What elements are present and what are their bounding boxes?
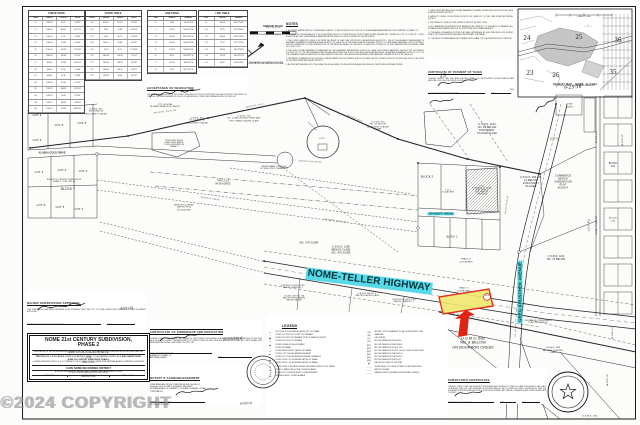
table-row: L9100.00'N63°27'00"E bbox=[199, 21, 247, 28]
legend-symbol: ▨ bbox=[365, 363, 373, 365]
table-row: C11066.00'94.01'5°03'10" bbox=[29, 21, 84, 28]
map-label: NOME-TELLER HIGHWAY bbox=[305, 267, 432, 294]
table-row: L680.59'S30°43'27"W bbox=[148, 54, 196, 61]
map-label: U.S.M.S. 1282 BENCH CLAIM NO. 4 PLACER bbox=[331, 245, 350, 254]
map-label: 24 bbox=[523, 34, 530, 42]
map-label: U.S.M.S. 827 NO. 10 BELOW DISCOVERY PLAC… bbox=[186, 117, 208, 124]
legend-item: ▪ FOUND 2 1/2" T503-S ALUMINUM MONUMENT … bbox=[266, 357, 362, 359]
line-table-2: LINE TABLE LINELENGTHBEARING L9100.00'N6… bbox=[198, 10, 248, 68]
note-item: 5. THE BASIS OF BEARING IS THE GEODETIC … bbox=[286, 58, 424, 62]
taxes-signer-label: CITY OF NOME TAX COLLECTION OFFICIAL bbox=[428, 94, 485, 96]
legend-text: MINERAL SURVEY CORNER NUMBER bbox=[276, 376, 306, 378]
table-row: C7866.00'153.88'10°10'52" bbox=[29, 60, 84, 67]
legend-text: SET T503-S 2 1/2" ALUMINUM CAPPED 5/8" X… bbox=[276, 332, 320, 334]
legend-title: LEGEND bbox=[282, 324, 297, 329]
legend-item: (R1) RECORD DATA FROM PLAT 2008-05 bbox=[365, 345, 447, 347]
note-item: 9. THE LINEAL CLOSURE OF THIS SURVEY DOE… bbox=[428, 22, 513, 24]
table-row: L3205.48'N61°29'10"W bbox=[148, 34, 196, 41]
map-label: 23 bbox=[526, 69, 533, 77]
legend-item: ○ FOUND 4"X4" FIR POST OR FIR POST REMNA… bbox=[266, 335, 362, 337]
map-label: 36 bbox=[614, 36, 621, 44]
map-label: U.S.M.S. 454 NO. 14 BELOW DISCOVERY PLAC… bbox=[520, 176, 542, 188]
legend-text: MEASURED bbox=[375, 335, 384, 337]
taxes-date-cell: DATE bbox=[491, 93, 511, 96]
parcel-detail-circle bbox=[484, 294, 491, 301]
map-label: LOT 2 bbox=[58, 169, 67, 173]
legend-text: SURVEY AND R.O.W. LINES OUTSIDE OF THIS … bbox=[375, 367, 422, 369]
map-label: 26 bbox=[552, 71, 559, 79]
red-pointer-arrow-icon bbox=[455, 310, 475, 337]
map-label: U.S.M.S. 706 NO. 11 BELOW DISCOVERY AND … bbox=[227, 115, 261, 122]
taxes-year-suffix: , 2016 bbox=[428, 89, 514, 91]
legend-symbol: ○ bbox=[266, 335, 274, 337]
map-label: S58°31'04"E 664.27' bbox=[346, 115, 363, 124]
map-label: U.S.M.S. 1104 NO. 13 BELOW DISCOVERY PLA… bbox=[477, 124, 497, 136]
monument-symbols bbox=[96, 153, 521, 254]
map-label: U.S.M.S. 1122 NO. 15 BELOW bbox=[547, 256, 565, 262]
table-row: L11348.06'N62°42'43"E bbox=[199, 34, 247, 41]
table-row: C61866.00'166.86'5°07'23" bbox=[29, 54, 84, 61]
legend-item: (M) MEASURED bbox=[365, 335, 447, 337]
legend-symbol: (R4) bbox=[365, 354, 373, 356]
map-label: — E — bbox=[584, 26, 592, 29]
legend-text: CALCULATED bbox=[375, 338, 386, 340]
legend-symbol: (R3) bbox=[365, 351, 373, 353]
map-label: U.S.M.S. 685 NO. 8 BELOW ON BOURBON CREE… bbox=[452, 336, 494, 349]
map-label: U.S.M.S. 827 NO. 8 BELOW DISCOVERY PLACE… bbox=[85, 108, 107, 115]
table-body: L9100.00'N63°27'00"EL1078.75'S26°33'00"E… bbox=[199, 21, 247, 67]
note-item: 7. GREG KRUSCHEK AVE RIGHT-OF-WAY EASEME… bbox=[428, 10, 513, 14]
plat-scale: SCALE: 1" = 200' bbox=[110, 376, 145, 377]
map-label: GOLDEN HILL SUBDIVISION PLATS 84-8 & 86-… bbox=[524, 320, 551, 324]
legend-symbol: — — bbox=[365, 367, 373, 369]
plat-date: AUGUST 2015 bbox=[32, 376, 68, 377]
map-label: BLOCK 130 bbox=[609, 217, 617, 222]
plat-title-line-2: PHASE 2 bbox=[78, 342, 99, 348]
legend-symbol: ▪ bbox=[266, 357, 274, 359]
map-label: S66°34'12"E 1358.06' bbox=[200, 197, 219, 202]
note-item: 3. THE CURVE DATA FOR CURVE 21 IS FROM T… bbox=[286, 40, 424, 49]
map-label: LOT 5 bbox=[56, 206, 65, 210]
legend-item: (R2) RECORD DATA FROM U.S.M.S. 1126 bbox=[365, 348, 447, 350]
table-row: C8866.00'21.69'1°26'06" bbox=[29, 67, 84, 74]
map-label: APPROXIMATE LOCATION 60' WIDE UTILITY EA… bbox=[260, 166, 288, 170]
legend-item: ▲ FOUND 1" BRASS CAP SET IN A CONCRETE T… bbox=[266, 370, 362, 372]
approval-body: THIS SUBDIVISION HAS BEEN REVIEWED IN AC… bbox=[27, 309, 146, 313]
map-label: BLOCK 124 bbox=[609, 163, 618, 169]
table-row: L154.89'S32°42'40"E bbox=[148, 21, 196, 28]
legend-text: FOUND 6"X6" FIR POST REMNANT bbox=[276, 341, 303, 343]
note-item: 1. ALL WASTE WATER (SEPTIC) SYSTEMS ARE … bbox=[286, 30, 424, 32]
map-label: LOT 1 bbox=[35, 171, 44, 175]
legend-item: ● SET T503-S 2 1/2" ALUMINUM CAPPED 5/8"… bbox=[266, 332, 362, 334]
title-block: NOME 21st CENTURY SUBDIVISION, PHASE 2 A… bbox=[27, 333, 150, 382]
map-label: NOME TOWNSITE bbox=[596, 215, 598, 234]
map-label: AIRPORT LICENSE (SEE NOTE 2) 38.24 ACRES bbox=[174, 204, 193, 211]
taxes-certificate: CERTIFICATE OF PAYMENT OF TAXES I HEREBY… bbox=[428, 60, 514, 96]
legend-symbol: ● bbox=[266, 332, 274, 334]
survey-corner-dots bbox=[29, 97, 557, 313]
map-label: PORTION U.S.M.S. 1282 BENCH CLAIM NO. 2 bbox=[281, 285, 305, 289]
subdivision-approval: MAJOR SUBDIVISION APPROVAL THIS SUBDIVIS… bbox=[27, 291, 146, 327]
map-label: PROPOSED SNOW DUMP OPEN SPACE TO BE DEDI… bbox=[164, 140, 184, 148]
map-label: U.S.M.S. 955 NO. 1/2 BELOW DISCOVERY PLA… bbox=[367, 121, 389, 130]
note-item: 8. AIRPORT LICENSE IS RECORDED AT BOOK 2… bbox=[428, 16, 513, 20]
note-item: 11. THE BASIS OF BEARING ON THIS PLAT WA… bbox=[428, 32, 513, 36]
vicinity-caption-block: VICINITY MAP - NOME, ALASKA FROM USGS NO… bbox=[520, 83, 630, 87]
surveyor-cert-body: I HEREBY CERTIFY THAT I AM PROPERLY REGI… bbox=[448, 386, 546, 395]
legend-item: ▨ PARCELS NOT PART OF THIS PLAT bbox=[365, 363, 447, 365]
approval-date-label: DATE bbox=[107, 325, 135, 327]
map-label: PLAT 2008-7 bbox=[566, 103, 573, 108]
map-label: LOT 6 bbox=[78, 122, 87, 126]
map-label: TRACT D 3.67 ACRES bbox=[459, 258, 472, 263]
legend-item: —··— MINERAL SURVEY BOUNDARY WITHIN NOME… bbox=[365, 373, 447, 375]
legend-text: MINERAL SURVEY BOUNDARY WITHIN NOME TOWN… bbox=[375, 373, 420, 375]
surveyor-pls-label: PLS # bbox=[500, 403, 516, 405]
map-label: N63°27'00"E 797.54' bbox=[246, 103, 264, 108]
map-label: U.S.M.S. 1182 bbox=[582, 416, 597, 419]
taxes-body: I HEREBY CERTIFY THAT THE TAXES DUE AND … bbox=[428, 78, 514, 82]
table-row: L7212.85'S66°34'12"E bbox=[148, 60, 196, 67]
legend-symbol: ◦ bbox=[266, 348, 274, 350]
note-item: 4. THE RIGHT-OF-WAY EASEMENT ESTABLISHED… bbox=[286, 50, 424, 56]
legend-text: FOUND 8604-S PLASTIC CAPPED 5/8" REBAR bbox=[276, 351, 312, 353]
legend-item: □ FOUND 6"X6" FIR POST REMNANT bbox=[266, 341, 362, 343]
legend-symbol: —··— bbox=[365, 373, 373, 375]
legend-text: RECORD DATA FROM PLAT 2009-14 bbox=[375, 354, 403, 356]
table-row: C15800.00'111.52'7°59'20" bbox=[86, 21, 141, 28]
legend-text: PARCELS NOT PART OF THIS PLAT bbox=[375, 363, 402, 365]
legend-item: (R5) RECORD DATA FROM PLAT 2006-14 bbox=[365, 357, 447, 359]
legend-text: FOUND 2 1/2" T503-S ALUMINUM MONUMENT (D… bbox=[276, 357, 321, 359]
table-row: L839.19'S27°02'17"W bbox=[148, 67, 196, 74]
table-row: C201866.00'256.38'7°52'14" bbox=[86, 54, 141, 61]
table-row: C121298.23'76.08'3°21'28" bbox=[29, 93, 84, 100]
map-label: BLOCK 127 bbox=[612, 327, 614, 339]
table-row: C1970.00'85.79'70°13'28" bbox=[86, 47, 141, 54]
map-label: LOT 6 bbox=[37, 204, 46, 208]
table-body: L154.89'S32°42'40"EL2253.52'N63°27'00"EL… bbox=[148, 21, 196, 74]
legend-right-column: U.E. SET MOD. UTILITY EASEMENT (10' EA. … bbox=[365, 332, 447, 379]
table-body: C11066.00'94.01'5°03'10"C21066.00'883.07… bbox=[29, 21, 84, 113]
surveyor-pls-cell: PLS # bbox=[500, 402, 516, 405]
legend-symbol: ◆ bbox=[266, 345, 274, 347]
legend-text: FOUND 2 1/4" T503-S ALUMINUM MONUMENT bbox=[276, 354, 312, 356]
map-label: S63°23'40"W 1202.13' (M) bbox=[324, 218, 347, 223]
legend-text: RECORD DATA FROM U.S.M.S. 1122 NO. 10 BE… bbox=[375, 351, 425, 353]
table-row: C1670.00'55.88'45°44'23" bbox=[86, 27, 141, 34]
table-row: L1276.75'S27°17'17"E bbox=[199, 40, 247, 47]
table-row: L13148.06'N63°23'40"E bbox=[199, 47, 247, 54]
surveyor-date-label: DATE bbox=[522, 403, 540, 405]
ownership-date-label: DATE bbox=[218, 358, 252, 360]
legend-symbol: ⊕ bbox=[266, 363, 274, 365]
map-label: U.S.S. 451 bbox=[589, 219, 592, 232]
legend-item: ⊛ FOUND 59188V 2" ALUMINUM CAPPED MONUME… bbox=[266, 367, 362, 369]
map-label: NO. 3 PLACER bbox=[299, 241, 318, 244]
line-table-1: LINE TABLE LINELENGTHBEARING L154.89'S32… bbox=[147, 10, 197, 74]
taxes-date-label: DATE bbox=[491, 94, 511, 96]
legend-text: FOUND 1" BRASS CAP SET IN A CONCRETE TAB… bbox=[276, 370, 317, 372]
highlighted-parcel bbox=[439, 289, 493, 314]
map-label: LOT 1 2.04 ACRES bbox=[442, 190, 454, 195]
legend-text: FOUND 4"X4" FIR POST OR FIR POST REMNANT bbox=[276, 335, 314, 337]
table-row: L4139.43'N62°42'43"E bbox=[148, 40, 196, 47]
surveyor-date-cell: DATE bbox=[522, 402, 540, 405]
legend-item: ⊕ FOUND 4135-S 1 1/4" ALUMINUM CAPPED 5/… bbox=[266, 363, 362, 365]
table-row: C221766.00'208.11'6°45'07" bbox=[86, 67, 141, 74]
approval-title: MAJOR SUBDIVISION APPROVAL bbox=[27, 301, 81, 306]
ownership-body: I HEREBY CERTIFY THAT WE ARE THE OWNERS … bbox=[150, 338, 262, 344]
taxes-signature-cell: CITY OF NOME TAX COLLECTION OFFICIAL bbox=[428, 93, 485, 96]
map-label: LOT 4 bbox=[75, 208, 84, 212]
map-label: GREG KRUSCHEK AVENUE bbox=[517, 260, 522, 323]
legend-item: ◦ FOUND 5/8" REBAR bbox=[266, 348, 362, 350]
legend-symbol: (R1) bbox=[365, 345, 373, 347]
map-label: STANOFF DRIVE bbox=[427, 212, 454, 215]
table-row: C21066.00'883.07'47°27'53" bbox=[29, 27, 84, 34]
legend-symbol: ⊙ bbox=[266, 351, 274, 353]
map-label: 35 bbox=[609, 68, 616, 76]
notes-section: NOTES 1. ALL WASTE WATER (SEPTIC) SYSTEM… bbox=[286, 12, 424, 68]
table-row: C1770.00'85.79'70°13'28" bbox=[86, 34, 141, 41]
legend-text: FOUND T503-S 2 1/2" ALUMINUM CAPPED 5/8"… bbox=[276, 360, 318, 362]
note-item: 12. THE SNOW STORAGE AREAS WILL REMAIN U… bbox=[428, 38, 513, 40]
taxes-title: CERTIFICATE OF PAYMENT OF TAXES bbox=[428, 71, 482, 75]
legend-symbol: 1-6 bbox=[266, 376, 274, 378]
table-row: C31766.00'51.20'1°39'38" bbox=[29, 34, 84, 41]
legend-text: FOUND 4135-S 1 1/4" ALUMINUM CAPPED 5/8"… bbox=[276, 363, 318, 365]
vicinity-scale-text: SCALE: 1" = 1000' bbox=[552, 17, 616, 18]
table-body: C15800.00'111.52'7°59'20"C1670.00'55.88'… bbox=[86, 21, 141, 80]
legend-item: ⊙ FOUND 8604-S PLASTIC CAPPED 5/8" REBAR bbox=[266, 351, 362, 353]
table-row: C101298.23'157.81'6°57'53" bbox=[29, 80, 84, 87]
notes-list: 1. ALL WASTE WATER (SEPTIC) SYSTEMS ARE … bbox=[286, 30, 424, 66]
legend-symbol: □ bbox=[266, 341, 274, 343]
map-label: LOT 5 bbox=[319, 138, 325, 140]
map-label: BLOCK 123 bbox=[596, 131, 598, 143]
plat-sheet: CURVE TABLE CURVERADIUSLENGTHDELTA C1106… bbox=[0, 0, 640, 425]
table-row: C111298.23'438.93'19°22'24" bbox=[29, 87, 84, 94]
approval-signer-label: CHAIRMAN OF THE NOME PLANNING COMMISSION bbox=[27, 325, 101, 327]
legend-item: (R) RECORD DATA FROM PLAT 2004-6 bbox=[365, 341, 447, 343]
legend-symbol: ■ bbox=[266, 354, 274, 356]
legend-symbol: ⊛ bbox=[266, 367, 274, 369]
notes-list-2: 7. GREG KRUSCHEK AVE RIGHT-OF-WAY EASEME… bbox=[428, 10, 513, 40]
hatched-excluded-parcel bbox=[466, 168, 498, 214]
table-row: C141298.23'873.65'38°33'24" bbox=[29, 106, 84, 113]
vicinity-subcaption: FROM USGS NOME D-1 QUADRANGLE, ALASKA 19… bbox=[520, 86, 630, 87]
notes-title: NOTES bbox=[286, 22, 298, 27]
legend-item: (R4) RECORD DATA FROM PLAT 2009-14 bbox=[365, 354, 447, 356]
map-label: LOT 2 bbox=[550, 137, 558, 140]
legend-text: FOUND 4"X4" FIR POST REMNANT WITH 5/8" R… bbox=[276, 338, 326, 340]
surveyor-signature-cell: REGISTERED LAND SURVEYOR bbox=[448, 402, 494, 405]
surveyor-reg-label: REGISTERED LAND SURVEYOR bbox=[448, 403, 494, 405]
vicinity-scale: SCALE: 1" = 1000' bbox=[552, 17, 616, 18]
legend-symbol: U.E. bbox=[365, 332, 373, 334]
table-row: C51766.00'536.03'17°23'24" bbox=[29, 47, 84, 54]
legend-text: RECORD DATA FROM PLAT 2008-05 bbox=[375, 345, 403, 347]
legend-symbol: (R2) bbox=[365, 348, 373, 350]
ownership-title: CERTIFICATE OF OWNERSHIP AND DEDICATION bbox=[150, 329, 223, 335]
signature-recorder bbox=[536, 98, 555, 112]
surveyor-cert-title: SURVEYOR'S CERTIFICATE bbox=[448, 378, 490, 383]
legend-symbol: (M) bbox=[365, 335, 373, 337]
table-row: L14101.18'S30°43'27"W bbox=[199, 54, 247, 61]
legend-item: △ FOUND 4"X4" CONCRETE RIGHT OF WAY MONU… bbox=[266, 373, 362, 375]
curve-table-2: CURVE TABLE CURVERADIUSLENGTHDELTA C1580… bbox=[85, 10, 142, 81]
map-label: CITY OF NOME RICHARD BENEVILLE, MAYOR bbox=[150, 104, 180, 108]
map-label: U.S.M.S. 689 ARCADE PLACER CLAIM bbox=[543, 347, 563, 355]
map-label: LOT 3 bbox=[79, 170, 88, 174]
legend-symbol: (C) bbox=[365, 338, 373, 340]
legend-item: (R3) RECORD DATA FROM U.S.M.S. 1122 NO. … bbox=[365, 351, 447, 353]
map-label: 25 bbox=[575, 33, 582, 41]
table-row: C231298.23'93.38'4°07'16" bbox=[86, 73, 141, 80]
table-row: L5172.89'N63°23'40"E bbox=[148, 47, 196, 54]
table-row: C41766.00'122.81'3°59'04" bbox=[29, 40, 84, 47]
table-row: C18730.00'55.88'4°23'10" bbox=[86, 40, 141, 47]
legend-text: RECORD DATA FROM PLAT 2004-6 bbox=[375, 341, 402, 343]
owner-address: ANCHORAGE, ALASKA bbox=[150, 358, 212, 360]
notes-section-2: 7. GREG KRUSCHEK AVE RIGHT-OF-WAY EASEME… bbox=[428, 10, 513, 41]
legend-item: —·— AIRPORT LICENSE bbox=[365, 370, 447, 372]
map-label: TRACT A-2 94.06 ACRES bbox=[215, 180, 230, 185]
table-row: L1078.75'S26°33'00"E bbox=[199, 27, 247, 34]
map-label: BLOCK 7 bbox=[61, 188, 75, 192]
map-label: LOT 5 bbox=[55, 124, 64, 128]
map-label: BLOCK 3 bbox=[421, 175, 434, 178]
legend-text: FOUND 59188V 2" ALUMINUM CAPPED MONUMENT… bbox=[276, 367, 335, 369]
legend-item: 1-6 MINERAL SURVEY CORNER NUMBER bbox=[266, 376, 362, 378]
map-label: S30°43'27"W 664.68' bbox=[505, 196, 509, 214]
ownership-date-cell: DATE bbox=[218, 357, 252, 360]
legend-symbol: —·— bbox=[365, 370, 373, 372]
note-item: 10. ALL BEARINGS SHOWN ARE TRUE BEARINGS… bbox=[428, 26, 513, 30]
legend-text: FOUND DURKEE STONE MONUMENT bbox=[276, 345, 305, 347]
approval-date-cell: DATE bbox=[107, 324, 135, 327]
map-label: LOT 3 bbox=[33, 114, 42, 118]
legend-text: RECORD DATA FROM U.S.M.S. 1126 bbox=[375, 348, 403, 350]
map-label: 45.00 bbox=[485, 296, 489, 298]
acceptance-of-dedication: ACCEPTANCE OF DEDICATION THE MAYOR HEREB… bbox=[147, 76, 247, 98]
approval-signature-cell: CHAIRMAN OF THE NOME PLANNING COMMISSION bbox=[27, 324, 101, 327]
ownership-certificate: CERTIFICATE OF OWNERSHIP AND DEDICATION … bbox=[150, 320, 262, 360]
legend-item: U.E. SET MOD. UTILITY EASEMENT (10' EA. … bbox=[365, 332, 447, 334]
map-label: LOT 2 "IOWA ASSOC. SUBD. PLAT 2008-05" N… bbox=[472, 186, 492, 197]
map-label: LOT 4 bbox=[33, 139, 42, 143]
legend-item: — — SURVEY AND R.O.W. LINES OUTSIDE OF T… bbox=[365, 367, 447, 369]
legend-text: RECORD DATA FROM PLAT 2006-14 bbox=[375, 357, 403, 359]
ownership-signature-cell: GAIL R. SCHUBERT, PRESIDENT ALASKA GOLD … bbox=[150, 353, 212, 359]
legend-item: ■ FOUND 2 1/4" T503-S ALUMINUM MONUMENT bbox=[266, 354, 362, 356]
note-item: 6. ALL NEW APPROACHES ONTO THE NOME-TELL… bbox=[286, 64, 424, 66]
map-label: TRACT C 8.94 ACRES bbox=[457, 287, 470, 292]
legend-text: AIRPORT LICENSE bbox=[375, 370, 390, 372]
table-row: C131298.23'286.61'12°38'55" bbox=[29, 100, 84, 107]
map-label: COMMERCE BENCH SUBDIVISION PLAT #2015-4 bbox=[554, 174, 572, 189]
legend-text: FOUND 5/8" REBAR bbox=[276, 348, 291, 350]
legend: LEGEND ● SET T503-S 2 1/2" ALUMINUM CAPP… bbox=[266, 314, 448, 418]
map-label: BLOCK 125 bbox=[622, 134, 624, 146]
notary-title: NOTARY'S ACKNOWLEDGEMENT bbox=[150, 376, 200, 381]
note-item: 2. CONSENT OF THE ALASKA DOT & PF IS REQ… bbox=[286, 34, 424, 38]
table-row: L2253.52'N63°27'00"E bbox=[148, 27, 196, 34]
legend-left-column: ● SET T503-S 2 1/2" ALUMINUM CAPPED 5/8"… bbox=[266, 332, 362, 379]
legend-symbol: (R) bbox=[365, 341, 373, 343]
signature-taxes-2 bbox=[430, 99, 453, 103]
acceptance-body: THE MAYOR HEREBY ACCEPTS FOR PUBLIC USES… bbox=[147, 94, 247, 98]
table-row: C211966.00'336.08'9°47'36" bbox=[86, 60, 141, 67]
legend-symbol: ▲ bbox=[266, 370, 274, 372]
map-label: N62°42'43"E 1012.41' (M) bbox=[154, 110, 177, 115]
legend-item: ◆ FOUND DURKEE STONE MONUMENT bbox=[266, 345, 362, 347]
legend-symbol: △ bbox=[266, 373, 274, 375]
legend-symbol: (R5) bbox=[365, 357, 373, 359]
map-label: N89°58'37"E 2647.82' (R4) bbox=[298, 160, 321, 163]
copyright-watermark: ©2024 COPYRIGHT bbox=[0, 393, 171, 413]
surveyor-seal-icon bbox=[548, 372, 588, 412]
legend-text: FOUND 4"X4" CONCRETE RIGHT OF WAY MONUME… bbox=[276, 373, 318, 375]
surveyors-certificate: SURVEYOR'S CERTIFICATE I HEREBY CERTIFY … bbox=[448, 368, 546, 404]
table-row: C9866.00'24.18'1°35'58" bbox=[29, 73, 84, 80]
map-label: BLOCK 2 bbox=[447, 237, 458, 240]
map-label: BLOCK 130 bbox=[607, 374, 609, 386]
map-label: NOME 21ST CENTURY SUBDIVISION PHASE 1, P… bbox=[47, 179, 81, 183]
curve-table-1: CURVE TABLE CURVERADIUSLENGTHDELTA C1106… bbox=[28, 10, 85, 114]
plat-page: PAGE ONE OF ONE bbox=[32, 377, 145, 378]
map-label: ALASKA GOLD DRIVE bbox=[38, 152, 65, 155]
map-label: PORTION U.S.M.S. 1282 BENCH CLAIM NO. 5 bbox=[392, 299, 416, 303]
map-label: U.S.M.S. 685 NO. 3 BELOW PLACER CLAIM bbox=[355, 293, 378, 297]
map-label: U.S.M.S. 685 NO. 8A BELOW ON BOURBON UNI… bbox=[283, 296, 305, 303]
legend-text: SET MOD. UTILITY EASEMENT (10' EA. SIDE … bbox=[375, 332, 423, 334]
legend-text: RECORD DATA FROM PLAT 2011-7 bbox=[375, 360, 402, 362]
acceptance-title: ACCEPTANCE OF DEDICATION bbox=[147, 86, 194, 91]
